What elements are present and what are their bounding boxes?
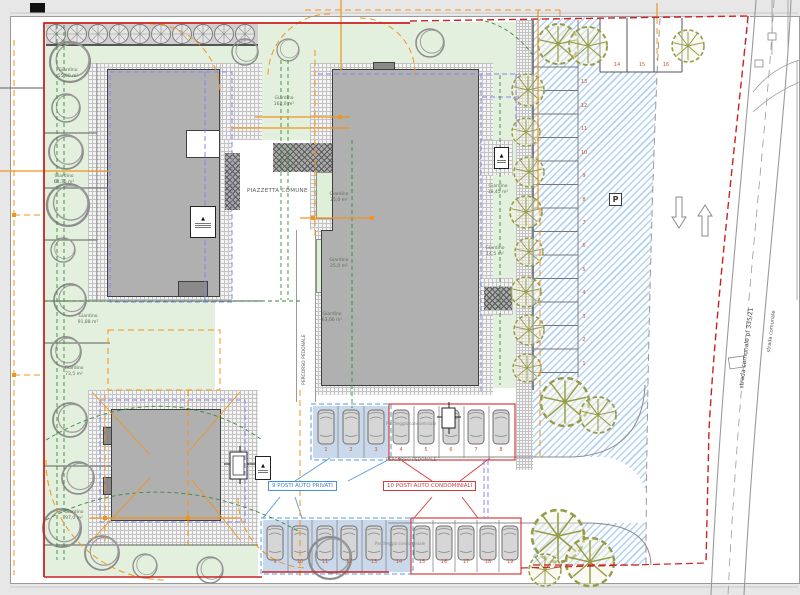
posti-condominiali-label: 10 POSTI AUTO CONDOMINIALI — [383, 481, 476, 491]
garden-label: Giardino64,75 m² — [44, 174, 84, 185]
entrance-triangle-icon: ▲ — [201, 217, 205, 222]
garden-label: Giardino25,0 m² — [320, 192, 358, 203]
site-plan-page: { "labels": { "piazzetta": "PIAZZETTA CO… — [0, 0, 800, 595]
entrance-badge-building-a: ▲ — [190, 206, 216, 238]
percorso-pedonale-vertical-label: PERCORSO PEDONALE — [302, 335, 307, 385]
stall-number: 15 — [419, 559, 425, 565]
stall-number: 16 — [441, 559, 447, 565]
parking-sign: P — [609, 193, 622, 206]
stall-number: 9 — [582, 173, 585, 179]
stall-number: 14 — [614, 62, 620, 68]
garden-walls — [0, 63, 262, 545]
stall-number: 7 — [474, 447, 477, 453]
percorso-pedonale-horizontal-label: PERCORSO PEDONALE — [386, 458, 436, 463]
stall-number: 17 — [463, 559, 469, 565]
garden-label: Giardino14,5 m² — [478, 246, 512, 257]
stall-number: 12 — [581, 103, 587, 109]
stall-number: 8 — [582, 197, 585, 203]
stall-number: 10 — [297, 559, 303, 565]
entrance-fixture-building-c — [224, 446, 256, 484]
garden-label: Giardino63,06 m² — [312, 312, 352, 323]
posti-privati-label: 9 POSTI AUTO PRIVATI — [268, 481, 337, 491]
garden-label: Giardino18,45 m² — [481, 184, 515, 195]
stall-number: 2 — [349, 447, 352, 453]
stall-number: 13 — [581, 79, 587, 85]
entrance-triangle-icon: ▲ — [500, 154, 504, 159]
stall-number: 11 — [322, 559, 328, 565]
stall-number: 15 — [639, 62, 645, 68]
stall-number: 3 — [582, 314, 585, 320]
stall-number: 9 — [273, 559, 276, 565]
stall-number: 16 — [663, 62, 669, 68]
garden-label: Giardino162,0 m² — [262, 96, 306, 107]
stall-number: 10 — [581, 150, 587, 156]
entrance-badge-building-c: ▲ — [255, 456, 271, 480]
garden-label: Giardino25,0 m² — [320, 258, 358, 269]
linework-overlay — [0, 0, 800, 595]
garden-label: Giardino73,5 m² — [52, 366, 96, 377]
stall-number: 2 — [582, 337, 585, 343]
stall-number: 11 — [581, 126, 587, 132]
parcheggio-condominiale-mid-label: Parcheggio condominiale — [386, 421, 436, 426]
entrance-triangle-icon: ▲ — [261, 464, 265, 469]
dimension-lines — [0, 0, 657, 580]
garden-label: Giardino91,88 m² — [66, 314, 110, 325]
stall-number: 8 — [499, 447, 502, 453]
stall-number: 12 — [346, 559, 352, 565]
stall-number: 4 — [582, 290, 585, 296]
stall-number: 6 — [582, 243, 585, 249]
stall-number: 5 — [424, 447, 427, 453]
gray-trees — [43, 29, 444, 583]
stall-number: 6 — [449, 447, 452, 453]
garden-label: Giardino97,0 m² — [52, 510, 96, 521]
stall-number: 7 — [582, 220, 585, 226]
stall-number: 5 — [582, 267, 585, 273]
garden-label: Giardino55,00 m² — [48, 68, 88, 79]
stall-number: 1 — [582, 361, 585, 367]
entrance-badge-building-b: ▲ — [494, 147, 509, 169]
hedge-shrubs — [47, 25, 255, 44]
internal-road — [646, 16, 748, 565]
stall-number: 18 — [485, 559, 491, 565]
property-boundary — [44, 16, 748, 577]
stall-number: 4 — [399, 447, 402, 453]
setback-lines — [100, 72, 520, 522]
parcheggio-condominiale-bottom-label: Parcheggio condominiale — [375, 541, 425, 546]
stall-number: 13 — [371, 559, 377, 565]
stall-number: 1 — [324, 447, 327, 453]
stall-number: 19 — [507, 559, 513, 565]
piazzetta-label: PIAZZETTA COMUNE — [247, 188, 308, 194]
stall-number: 14 — [396, 559, 402, 565]
stall-number: 3 — [374, 447, 377, 453]
